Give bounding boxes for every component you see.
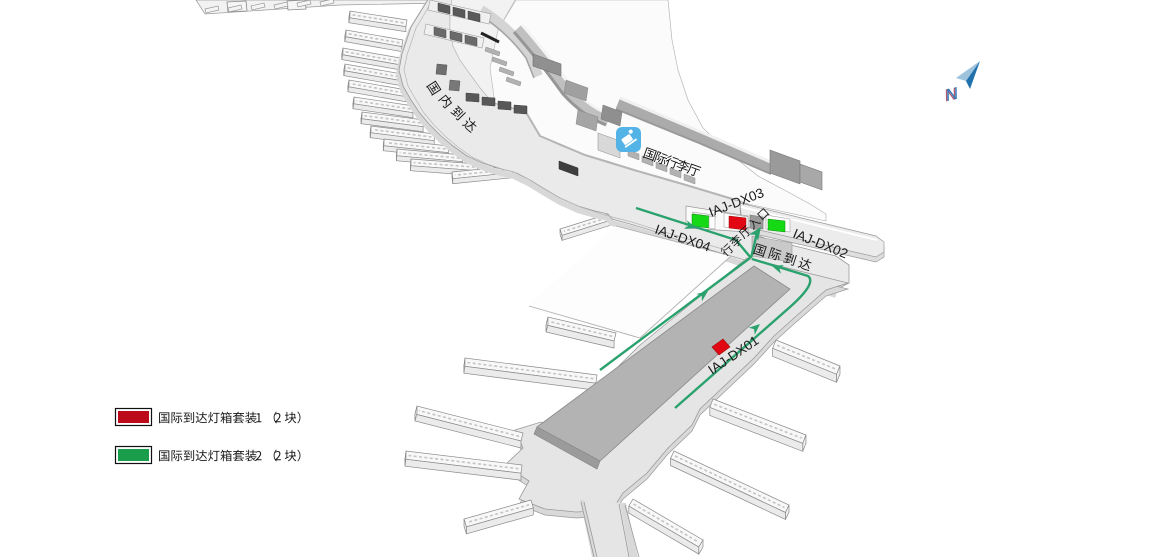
svg-text:N: N <box>944 84 961 105</box>
